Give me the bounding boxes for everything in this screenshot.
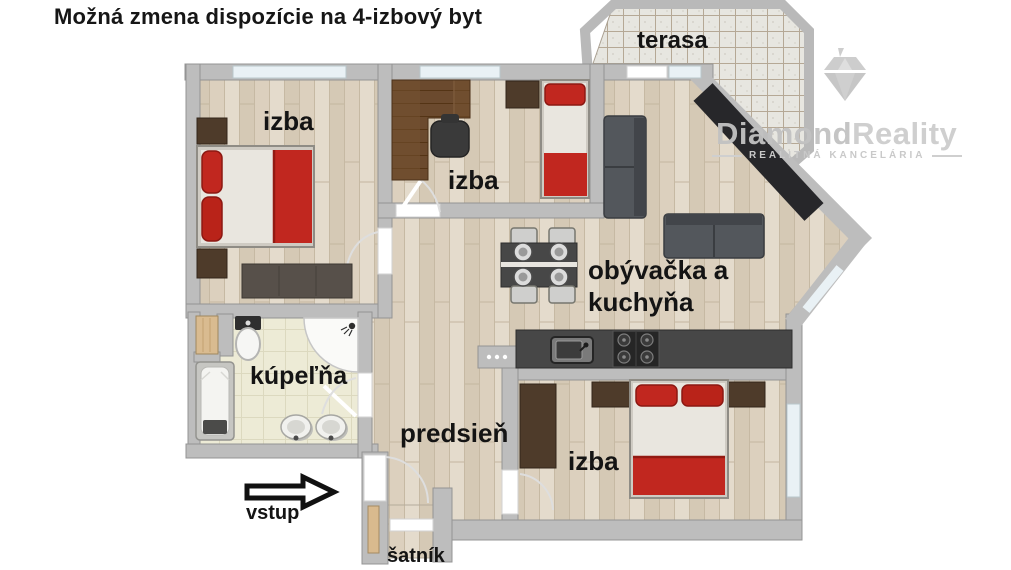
cabinet bbox=[506, 81, 539, 108]
label-bathroom: kúpeľňa bbox=[250, 363, 347, 389]
bathroom-wood-niche bbox=[196, 316, 218, 354]
door-izba-bottom bbox=[502, 470, 518, 514]
window-izba-top bbox=[233, 66, 346, 78]
bed-blanket bbox=[544, 153, 587, 196]
diamond-logo-icon bbox=[820, 48, 870, 111]
sofa-horizontal bbox=[664, 214, 764, 258]
terasa-window bbox=[669, 66, 701, 78]
label-izba-bottom: izba bbox=[568, 448, 619, 475]
bed-pillow bbox=[636, 385, 677, 406]
watermark-brand-part1: Diamond bbox=[716, 116, 852, 151]
nightstand bbox=[592, 382, 632, 407]
stove bbox=[613, 331, 659, 367]
dining-chair bbox=[549, 286, 575, 303]
shower-head-icon bbox=[349, 323, 355, 329]
page-title: Možná zmena dispozície na 4-izbový byt bbox=[54, 4, 482, 30]
nightstand bbox=[197, 249, 227, 278]
door-bathroom bbox=[358, 373, 372, 417]
label-living-line2: kuchyňa bbox=[588, 289, 728, 316]
watermark-brand: DiamondReality bbox=[716, 116, 957, 152]
bathtub bbox=[196, 362, 234, 440]
wardrobe bbox=[520, 384, 556, 468]
bed-pillow bbox=[682, 385, 723, 406]
nightstand bbox=[197, 118, 227, 144]
bed-pillow bbox=[545, 84, 585, 105]
office-chair bbox=[431, 121, 469, 157]
door-satnik bbox=[390, 519, 433, 531]
label-entrance: vstup bbox=[246, 503, 299, 524]
window-izba-bottom bbox=[787, 404, 800, 497]
label-hallway: predsieň bbox=[400, 420, 508, 447]
watermark-rule bbox=[932, 155, 962, 157]
door-izba-top bbox=[378, 228, 392, 274]
kitchen-counter bbox=[516, 330, 792, 368]
label-izba-top: izba bbox=[263, 108, 314, 135]
terasa-door bbox=[627, 66, 667, 78]
bed-pillow bbox=[202, 151, 222, 193]
bed-blanket bbox=[274, 150, 312, 243]
label-living-line1: obývačka a bbox=[588, 257, 728, 284]
watermark-subtitle-text: REALITNÁ KANCELÁRIA bbox=[749, 150, 925, 161]
bed-pillow bbox=[202, 197, 222, 241]
toilet bbox=[235, 316, 261, 360]
satnik-wood-panel bbox=[368, 506, 379, 553]
sofa-vertical bbox=[604, 116, 646, 218]
watermark-rule bbox=[712, 155, 742, 157]
label-living-kitchen: obývačka a kuchyňa bbox=[588, 257, 728, 317]
door-entrance bbox=[364, 455, 386, 501]
dresser bbox=[242, 264, 352, 298]
window-izba-middle bbox=[420, 66, 500, 78]
bed-blanket bbox=[633, 457, 725, 495]
dining-chair bbox=[549, 228, 575, 245]
floor-plan-page: Možná zmena dispozície na 4-izbový byt t… bbox=[0, 0, 1011, 570]
kitchen-sink bbox=[551, 337, 593, 363]
dining-chair bbox=[511, 286, 537, 303]
label-izba-middle: izba bbox=[448, 167, 499, 194]
watermark-subtitle: REALITNÁ KANCELÁRIA bbox=[712, 150, 978, 161]
label-closet: šatník bbox=[387, 546, 445, 567]
watermark-brand-part2: Reality bbox=[852, 116, 957, 151]
nightstand bbox=[727, 382, 765, 407]
label-terasa: terasa bbox=[637, 28, 708, 53]
